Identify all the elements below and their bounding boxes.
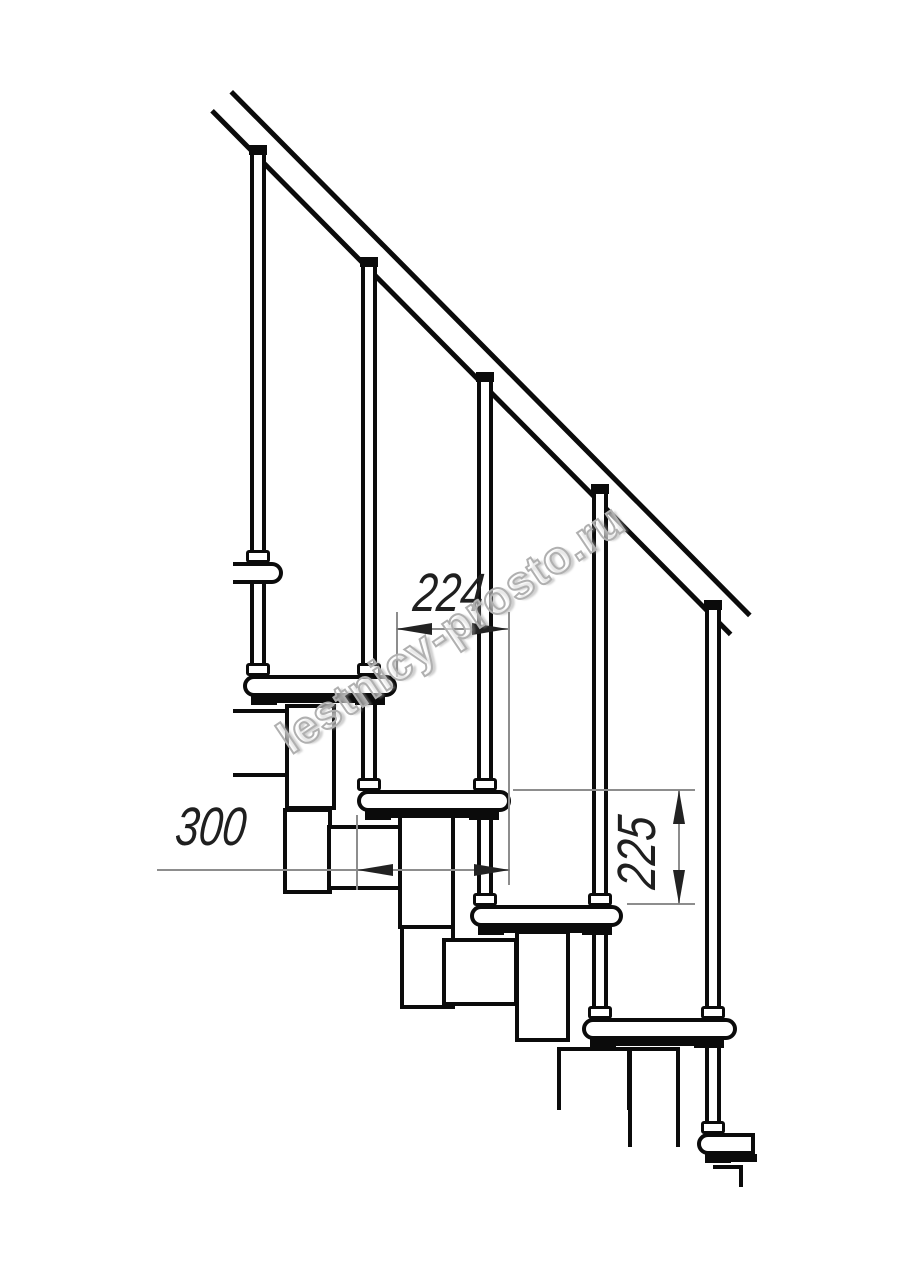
step-2 <box>357 790 511 812</box>
module-2-column <box>398 813 455 929</box>
baluster-5-collar-step-4 <box>701 1006 725 1019</box>
dim-225-ext-top <box>513 789 695 791</box>
dim-225-arrow-bottom <box>673 870 685 904</box>
baluster-2-flange-step-2 <box>357 778 381 791</box>
dim-300-label: 300 <box>161 800 260 854</box>
baluster-1-collar-landing <box>246 550 270 563</box>
module-3-connector <box>442 938 518 1006</box>
dim-225-label: 225 <box>610 797 664 907</box>
module-4-column <box>628 1047 680 1147</box>
step-4-foot-left <box>590 1039 616 1048</box>
step-1-foot-left <box>251 696 277 705</box>
baluster-5 <box>705 610 721 1133</box>
baluster-5-rail-cap <box>704 600 722 610</box>
baluster-1-flange-step-1 <box>246 663 270 676</box>
step-4-foot-right <box>694 1039 724 1048</box>
dim-300-line <box>157 869 510 871</box>
baluster-2-rail-cap <box>360 257 378 267</box>
dim-300-ext-left <box>356 815 358 890</box>
baluster-1-rail-cap <box>249 145 267 155</box>
baluster-3-rail-cap <box>476 372 494 382</box>
landing-tread <box>233 562 283 584</box>
step-5-foot-left <box>705 1154 731 1163</box>
step-3 <box>470 905 623 927</box>
site-watermark: lestnicy-prosto.ru <box>265 490 636 767</box>
baluster-4-collar-step-3 <box>588 893 612 906</box>
module-2-connector <box>327 825 403 890</box>
baluster-3-flange-step-3 <box>473 893 497 906</box>
module-1-lower <box>283 808 332 894</box>
dim-300-arrow-left <box>357 864 393 876</box>
step-2-foot-right <box>469 811 499 820</box>
baluster-4-flange-step-4 <box>588 1006 612 1019</box>
module-3-column <box>515 930 570 1042</box>
step-3-foot-right <box>582 926 612 935</box>
module-4-connector <box>557 1047 631 1110</box>
dim-300-arrow-right <box>474 864 510 876</box>
baluster-5-flange-step-5 <box>701 1121 725 1134</box>
baluster-1 <box>250 155 266 675</box>
step-3-plate <box>504 926 588 933</box>
step-4 <box>582 1018 737 1040</box>
step-4-plate <box>616 1039 700 1046</box>
baluster-4 <box>592 494 608 1018</box>
step-5-module-edge <box>739 1165 743 1187</box>
step-2-plate <box>391 811 475 818</box>
dim-225-arrow-top <box>673 790 685 824</box>
step-2-foot-left <box>365 811 391 820</box>
step-5-partial <box>697 1133 755 1155</box>
landing-floor-bottom-line <box>233 773 290 777</box>
dim-224-ext-right <box>508 612 510 885</box>
baluster-3-collar-step-2 <box>473 778 497 791</box>
staircase-drawing-canvas: 224 300 225 lestnicy-prosto.ru <box>0 0 914 1280</box>
step-5-plate <box>731 1154 757 1162</box>
step-3-foot-left <box>478 926 504 935</box>
